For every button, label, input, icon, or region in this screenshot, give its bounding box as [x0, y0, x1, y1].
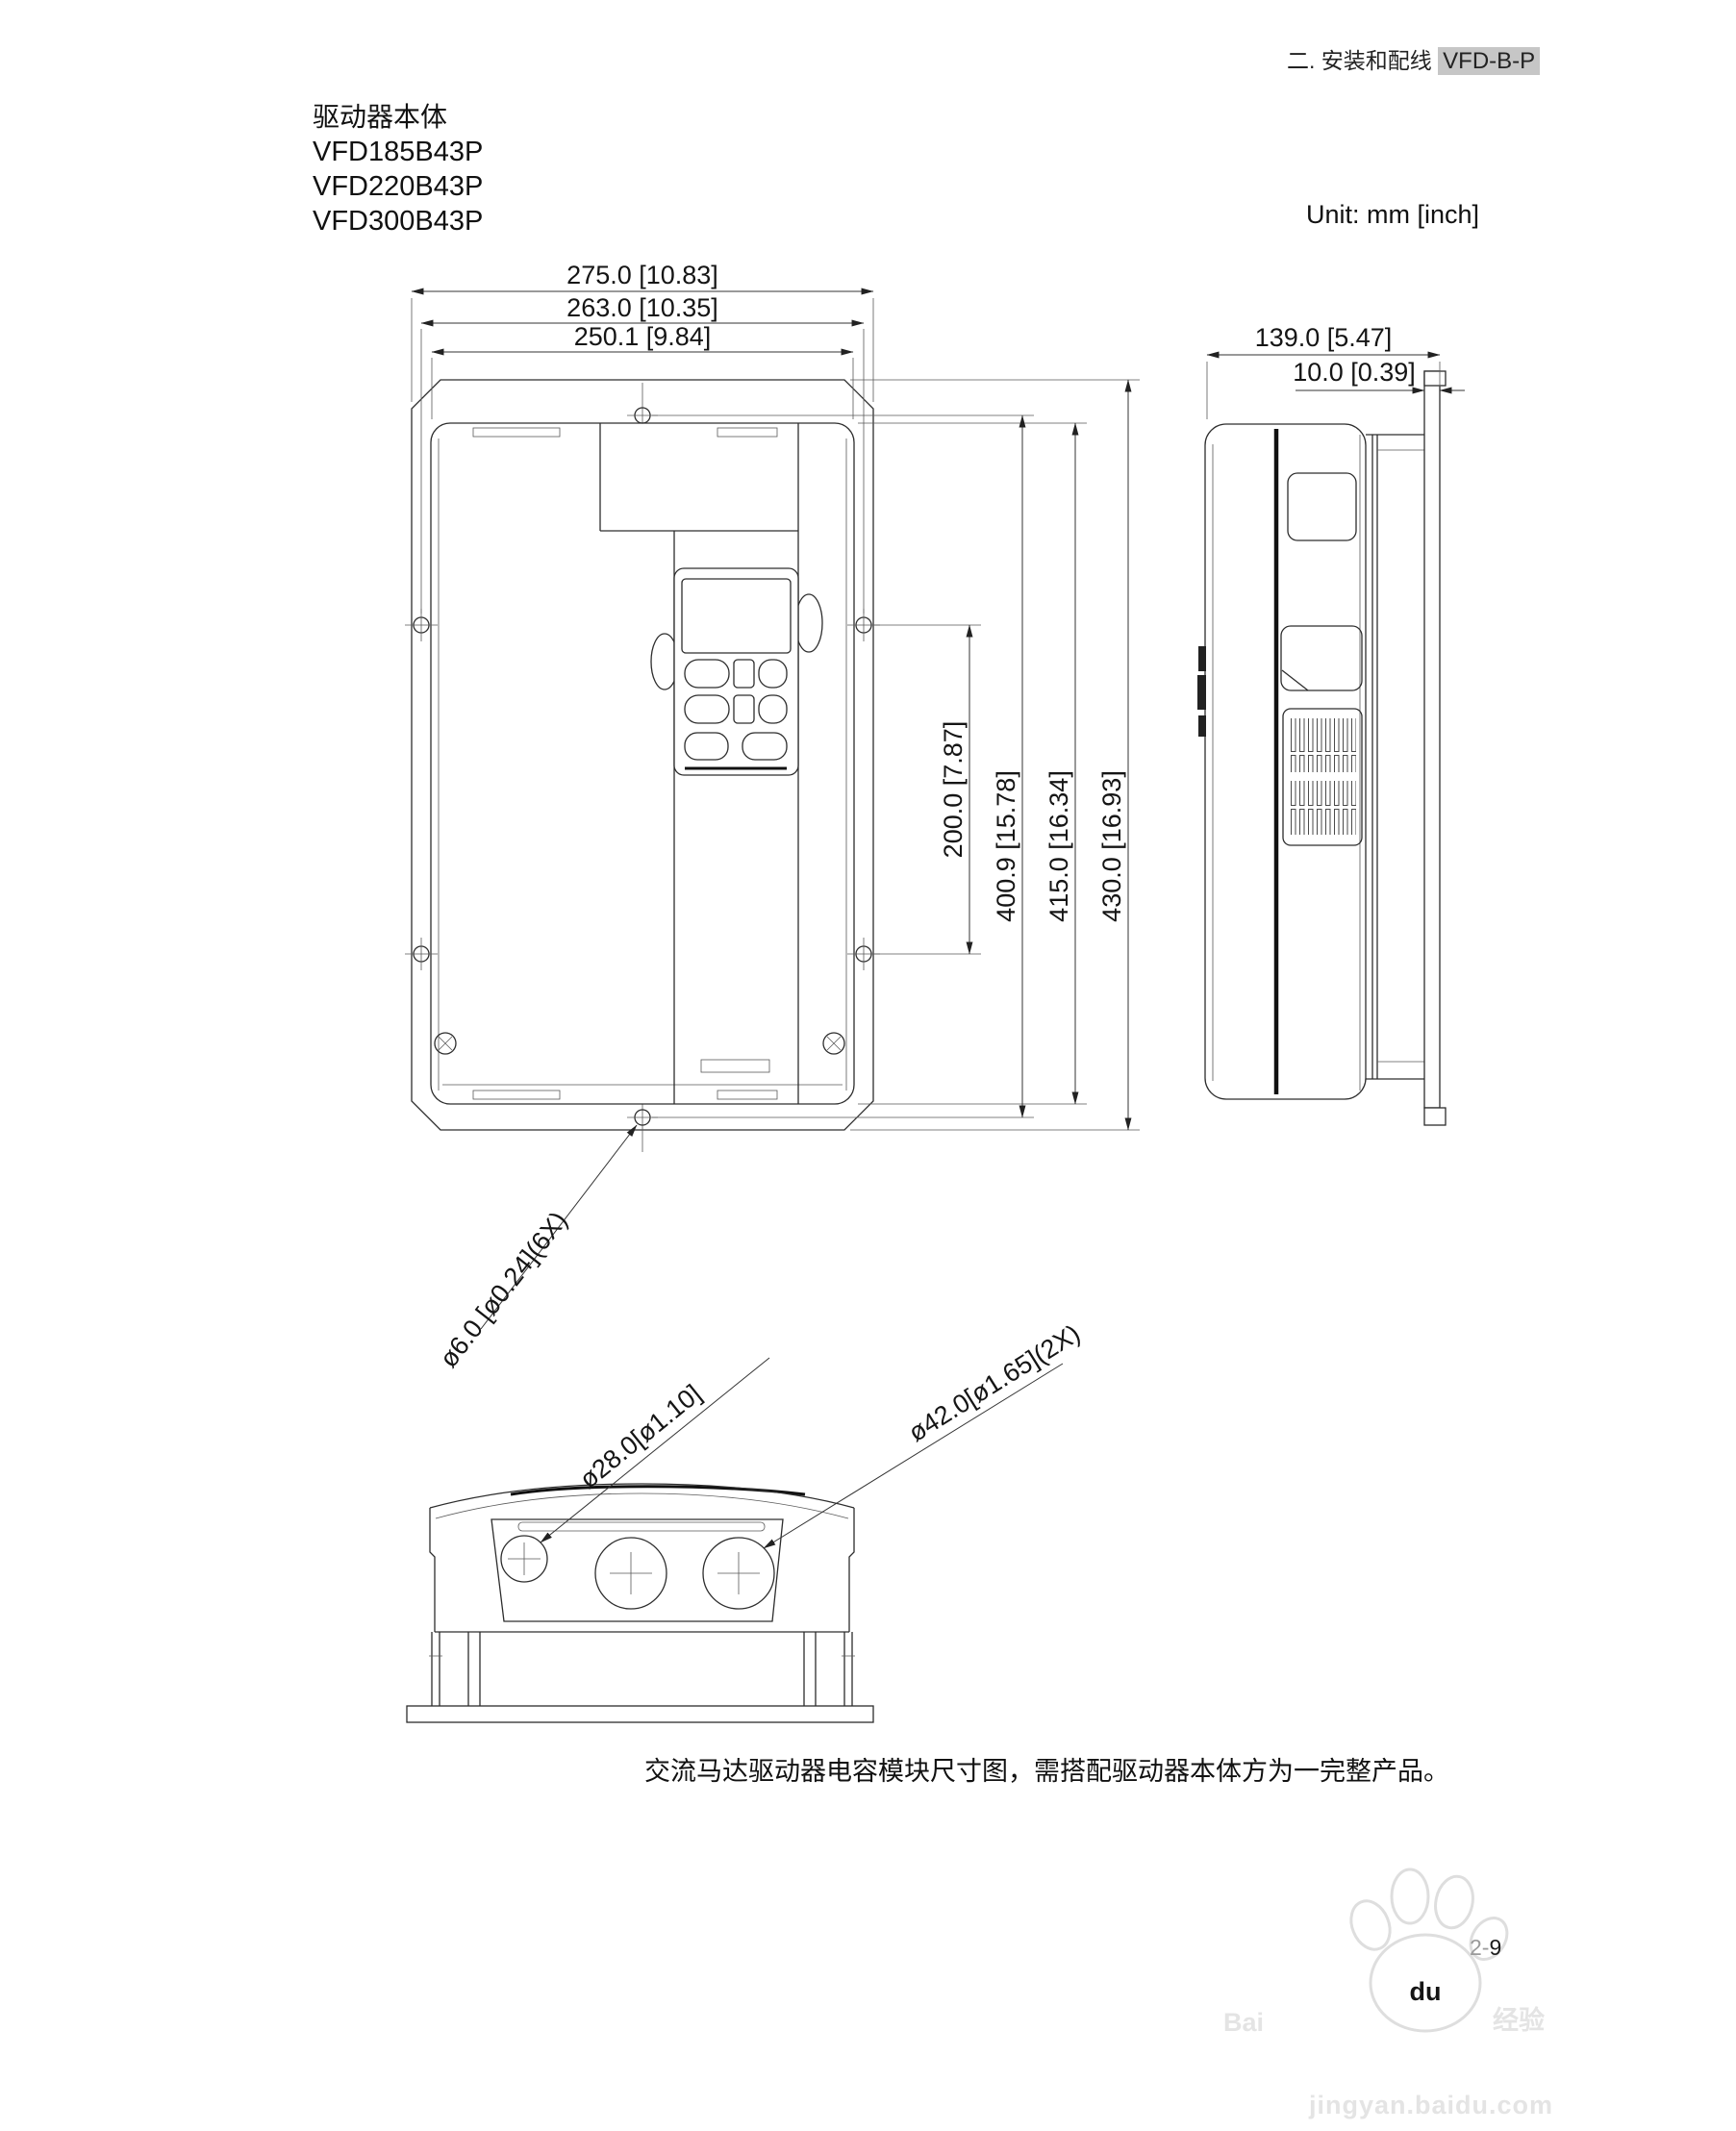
leader-large-hole-label: ø42.0[ø1.65](2X): [903, 1318, 1085, 1447]
dim-plate: 10.0 [0.39]: [1293, 358, 1416, 387]
side-keypad-bump: [1198, 646, 1206, 671]
title-model-2: VFD220B43P: [313, 169, 483, 204]
dimension-drawing: Bai du 经验 jingyan.baidu.com: [0, 0, 1736, 2131]
conduit-hole-small: [501, 1536, 547, 1582]
bottom-view: ø28.0[ø1.10] ø42.0[ø1.65](2X): [407, 1318, 1085, 1722]
bottom-plate-edge: [407, 1706, 873, 1722]
page-header: 二. 安装和配线 VFD-B-P: [1287, 42, 1540, 75]
dim-width-plate: 275.0 [10.83]: [566, 261, 718, 289]
page-number: 2-9: [1470, 1935, 1501, 1961]
front-hole-leader: ø6.0 [ø0.24](6X): [434, 1125, 637, 1373]
watermark-brand: Bai: [1223, 2008, 1264, 2037]
title-product: 驱动器本体: [313, 100, 483, 135]
leader-small-hole-label: ø28.0[ø1.10]: [574, 1379, 707, 1494]
leader-holes-label: ø6.0 [ø0.24](6X): [434, 1206, 573, 1372]
dim-height-holes: 400.9 [15.78]: [992, 770, 1020, 922]
title-model-3: VFD300B43P: [313, 204, 483, 238]
unit-label: Unit: mm [inch]: [1306, 200, 1479, 230]
bottom-leader-small: ø28.0[ø1.10]: [541, 1358, 769, 1542]
dim-height-plate: 430.0 [16.93]: [1097, 770, 1126, 922]
conduit-hole-large: [703, 1538, 774, 1609]
front-view: 275.0 [10.83] 263.0 [10.35] 250.1 [9.84]…: [405, 261, 1140, 1373]
watermark-du: du: [1410, 1977, 1442, 2006]
dim-height-body: 415.0 [16.34]: [1044, 770, 1073, 922]
side-view: 139.0 [5.47] 10.0 [0.39]: [1197, 323, 1465, 1125]
dim-height-side-holes: 200.0 [7.87]: [939, 721, 968, 859]
watermark-cn: 经验: [1493, 2005, 1545, 2035]
dim-depth: 139.0 [5.47]: [1255, 323, 1393, 352]
manual-page: Bai du 经验 jingyan.baidu.com: [0, 0, 1736, 2131]
page-number-suffix: 9: [1489, 1935, 1501, 1960]
title-model-1: VFD185B43P: [313, 135, 483, 169]
bottom-leader-large: ø42.0[ø1.65](2X): [764, 1318, 1085, 1548]
title-block: 驱动器本体 VFD185B43P VFD220B43P VFD300B43P: [313, 100, 483, 238]
figure-caption: 交流马达驱动器电容模块尺寸图，需搭配驱动器本体方为一完整产品。: [644, 1750, 1449, 1788]
dim-width-body: 250.1 [9.84]: [574, 322, 712, 351]
side-keypad-bump: [1198, 715, 1206, 737]
side-keypad-bump: [1197, 675, 1206, 710]
baidu-watermark: Bai du 经验 jingyan.baidu.com: [1223, 1869, 1553, 2119]
side-mounting-plate: [1424, 371, 1446, 1125]
watermark-url: jingyan.baidu.com: [1308, 2091, 1553, 2119]
conduit-hole-large: [595, 1538, 667, 1609]
conduit-panel: [491, 1519, 783, 1621]
header-section: 二. 安装和配线: [1287, 48, 1432, 73]
header-model-badge: VFD-B-P: [1438, 47, 1540, 75]
conduit-slot: [518, 1522, 765, 1531]
keypad: [674, 568, 798, 775]
page-number-prefix: 2-: [1470, 1935, 1489, 1960]
dim-width-holes: 263.0 [10.35]: [566, 293, 718, 322]
